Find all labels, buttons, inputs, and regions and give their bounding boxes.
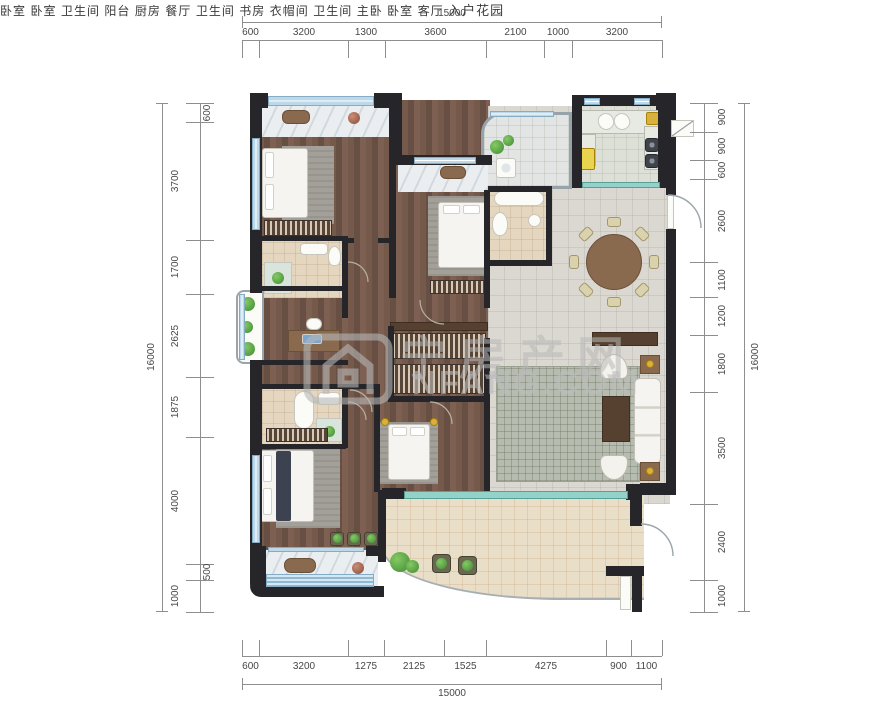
garden-bush-icon [406,560,419,573]
window [634,98,650,105]
window [252,138,260,230]
bedroom2-dresser [430,280,486,294]
dimension-tick [690,132,718,133]
dimension-segment-label: 600 [242,659,259,674]
ac-unit [671,120,694,137]
entry-door-leaf [620,576,631,610]
bay-plant-icon [348,112,360,124]
dim-tick [156,611,168,612]
dimension-tick [606,640,607,656]
bedroom2-pillow [443,205,460,214]
bath1-toilet [328,246,341,266]
nightstand [430,418,438,426]
nightstand [381,418,389,426]
balcony-plant-icon [503,135,514,146]
wall [346,238,354,243]
wall [342,286,348,318]
floor-bedroom1-baywindow [262,105,392,137]
dimension-tick [186,122,214,123]
kitchen-pass-window [582,182,660,188]
wall [382,488,406,499]
bath2-sink [528,214,541,227]
dimension-segment-label: 2100 [486,25,545,40]
wall [262,444,346,449]
dimension-tick [690,160,718,161]
dimension-tick [690,504,718,505]
dimension-tick [690,262,718,263]
balcony-decor [284,558,316,573]
dimension-segment-label: 1800 [715,334,731,394]
dimension-tick [486,640,487,656]
bath2-toilet [492,212,508,236]
door-leaf [667,195,674,229]
master-blanket [276,451,291,521]
dimension-tick [690,179,718,180]
garden-pot-plant [462,560,473,571]
bay-decor [282,110,310,124]
dimension-tick [259,640,260,656]
balcony-washer [496,158,516,178]
room-label-bedroom-2: 卧室 [30,4,56,18]
room-label-dining: 餐厅 [165,4,191,18]
dim-total-line-bottom [242,684,662,685]
dimension-tick [385,40,386,58]
wall [626,484,642,500]
window [268,96,374,106]
dimension-tick [690,612,718,613]
dimension-tick [572,40,573,58]
room-label-bedroom-1: 卧室 [0,4,26,18]
master-pillow [263,455,272,482]
room-label-balcony: 阳台 [104,4,130,18]
dimension-tick [444,640,445,656]
watermark: 宁房产网 NFANG.COM [296,318,696,410]
dimension-segment-label: 1300 [348,25,384,40]
bay-decor [440,166,466,179]
wall [488,186,552,192]
dimension-tick [690,335,718,336]
dimension-tick [690,392,718,393]
wall [488,260,552,266]
dimension-tick [259,40,260,58]
window [414,157,476,164]
dimension-tick [186,294,214,295]
kitchen-stove-icon [645,138,659,152]
dimension-tick [631,640,632,656]
dimension-tick [186,437,214,438]
wall [484,190,490,308]
dimension-segment-label: 3600 [385,25,486,40]
floorplan-canvas: 宁房产网 NFANG.COM 卧室 卧室 卫生间 阳台 厨房 餐厅 卫生间 书房… [0,0,885,710]
dimension-segment-label: 2400 [715,512,731,572]
pot-plant-icon [350,534,359,543]
dimension-segment-label: 900 [606,659,631,674]
bedroom1-pillow [265,184,274,210]
wall [262,236,346,241]
dimension-segment-label: 600 [242,25,259,40]
dimension-segment-label: 2600 [715,191,731,251]
pot-plant-icon [367,534,376,543]
room-label-kitchen: 厨房 [135,4,161,18]
bedroom3-pillow [410,427,425,436]
bath2-tub [494,191,544,206]
wall [262,286,348,291]
wall [366,546,378,556]
watermark-en-text: NFANG.COM [412,364,641,402]
dimension-segment-label: 1000 [544,25,572,40]
dimension-segment-label: 1100 [631,659,662,674]
dimension-tick [348,640,349,656]
dining-chair-icon [607,217,621,227]
window [404,491,628,499]
dimension-segment-label: 1700 [168,237,184,297]
dining-chair-icon [607,297,621,307]
dimension-tick [348,40,349,58]
dimension-segment-label: 3200 [572,25,662,40]
balcony-plant-icon [352,562,364,574]
room-label-bathroom-1: 卫生间 [61,4,100,18]
bath1-plant [272,272,284,284]
dimension-segment-label: 500 [200,542,216,602]
dimension-tick [186,612,214,613]
bedroom2-pillow [463,205,480,214]
dimension-tick [690,297,718,298]
dim-total-right: 16000 [748,327,764,387]
master-pillow [263,488,272,515]
dimension-segment-label: 3200 [259,659,349,674]
dimension-segment-label: 3500 [715,418,731,478]
dimension-segment-label: 2625 [168,306,184,366]
dimension-tick [690,580,718,581]
dimension-tick [384,640,385,656]
dimension-tick [544,40,545,58]
dim-total-line-left [162,103,163,612]
window [266,574,374,587]
dimension-tick [242,40,243,58]
dimension-line [200,103,201,612]
window [239,294,245,360]
dim-tick [738,611,750,612]
dim-total-bottom: 15000 [242,686,662,701]
dim-tick [156,103,168,104]
kitchen-fridge [580,148,595,170]
kitchen-stove-icon [645,154,659,168]
wall [378,490,386,562]
dimension-line [242,656,662,657]
bedroom3-pillow [392,427,407,436]
dimension-segment-label: 1275 [348,659,384,674]
dim-total-line-right [744,103,745,612]
dimension-segment-label: 3200 [259,25,349,40]
wall [632,566,642,612]
dimension-segment-label: 1000 [168,566,184,626]
dimension-tick [690,103,718,104]
dim-total-top: 15000 [242,6,662,21]
window [252,455,260,543]
dimension-segment-label: 4000 [168,471,184,531]
side-table-lamp [646,467,654,475]
dimension-segment-label: 2125 [384,659,444,674]
dimension-tick [186,377,214,378]
dining-table-icon [586,234,642,290]
dimension-tick [186,240,214,241]
room-label-bathroom-2: 卫生间 [196,4,235,18]
wall [389,105,396,298]
dining-chair-icon [569,255,579,269]
dimension-segment-label: 600 [200,83,216,143]
pot-plant-icon [333,534,342,543]
balcony-plant-icon [490,140,504,154]
bedroom1-dresser [264,220,332,236]
dimension-tick [662,640,663,656]
bedroom1-pillow [265,152,274,178]
floor-entry-garden [382,496,644,600]
garden-pot-plant [436,558,447,569]
dimension-tick [662,40,663,58]
wall [378,238,392,243]
dimension-tick [186,580,214,581]
dimension-segment-label: 1525 [444,659,487,674]
wall [250,586,384,597]
dimension-line [242,40,662,41]
dimension-segment-label: 4275 [486,659,606,674]
master-dresser [266,428,328,442]
dimension-tick [486,40,487,58]
window-sliding-door [268,547,364,552]
dim-total-line-top [242,22,662,23]
window [584,98,600,105]
wall [640,483,676,495]
wall [572,95,582,188]
dim-total-left: 16000 [144,327,160,387]
dimension-segment-label: 1875 [168,377,184,437]
window [490,111,554,117]
dimension-segment-label: 3700 [168,151,184,211]
wall [546,190,552,266]
dim-tick [738,103,750,104]
dimension-segment-label: 1000 [715,566,731,626]
dining-chair-icon [649,255,659,269]
house-logo-icon [302,332,394,406]
bath1-sink [300,243,328,255]
dimension-tick [242,640,243,656]
